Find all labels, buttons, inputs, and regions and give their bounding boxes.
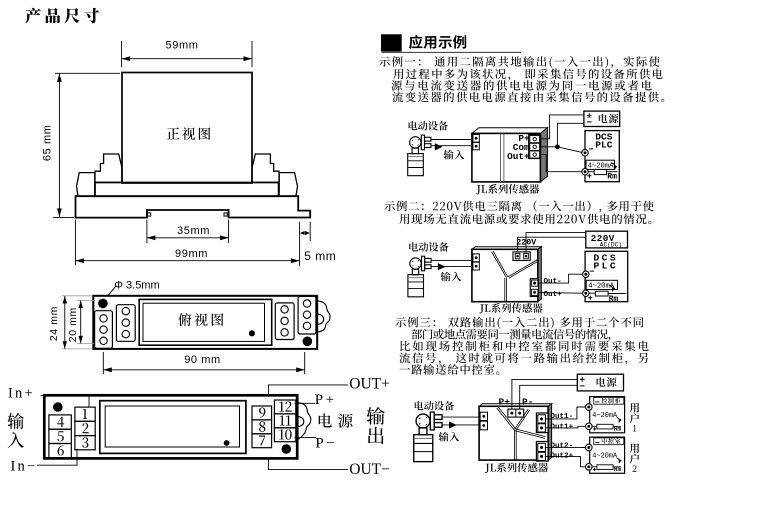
svg-text:In+: In+ [8, 386, 35, 402]
svg-text:AC(DC): AC(DC) [600, 242, 622, 249]
svg-text:Rm: Rm [614, 466, 622, 473]
svg-text:24 mm: 24 mm [48, 306, 60, 341]
svg-text:59mm: 59mm [166, 40, 199, 52]
svg-text:Rm: Rm [614, 425, 622, 432]
svg-text:P−: P− [315, 436, 337, 452]
svg-text:PLC: PLC [594, 261, 618, 272]
svg-text:Out1-: Out1- [550, 413, 573, 421]
svg-text:In−: In− [11, 459, 38, 475]
svg-text:4~20mA: 4~20mA [592, 412, 618, 420]
svg-text:Rm: Rm [609, 296, 619, 304]
svg-text:P+: P+ [499, 397, 511, 408]
svg-text:OUT−: OUT− [349, 461, 390, 478]
svg-text:Φ 3.5mm: Φ 3.5mm [114, 280, 159, 292]
svg-text:Rm: Rm [607, 173, 617, 182]
svg-text:5 mm: 5 mm [304, 249, 336, 263]
svg-text:1: 1 [632, 424, 637, 434]
svg-text:65 mm: 65 mm [42, 124, 54, 161]
svg-text:35mm: 35mm [177, 225, 210, 237]
svg-text:Out+: Out+ [544, 291, 563, 299]
svg-text:Out1+: Out1+ [550, 423, 573, 431]
svg-text:OUT+: OUT+ [349, 376, 390, 393]
svg-text:P-: P- [522, 397, 533, 408]
svg-text:99mm: 99mm [175, 248, 208, 260]
svg-text:PLC: PLC [595, 140, 613, 151]
svg-text:P+: P+ [315, 392, 337, 408]
svg-text:90 mm: 90 mm [184, 354, 221, 366]
svg-text:4~20mA: 4~20mA [592, 453, 618, 461]
svg-text:Out+: Out+ [507, 151, 530, 162]
svg-text:2: 2 [632, 465, 637, 475]
svg-text:20 mm: 20 mm [67, 307, 79, 342]
svg-text:Out-: Out- [544, 278, 562, 286]
svg-text:Out2-: Out2- [550, 442, 573, 450]
